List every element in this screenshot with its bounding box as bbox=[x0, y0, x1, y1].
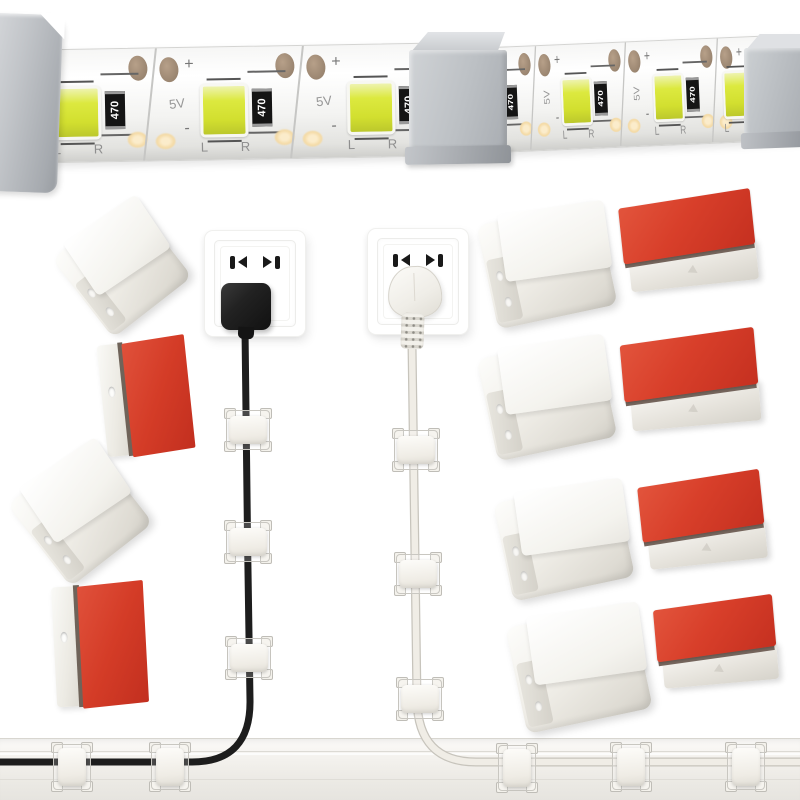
led-glow bbox=[156, 133, 176, 149]
cable-clip-on-wire bbox=[611, 743, 651, 791]
adhesive-cable-clip-red-pad-side bbox=[96, 336, 195, 459]
segment-separator bbox=[530, 44, 536, 150]
led-glow bbox=[537, 122, 550, 137]
resistor-label: 470 bbox=[686, 77, 700, 112]
mounting-hole bbox=[158, 56, 179, 83]
adhesive-cable-clip-red-pad-up bbox=[637, 472, 772, 573]
mounting-hole bbox=[127, 55, 148, 82]
adhesive-cable-clip-red-pad-up bbox=[618, 191, 763, 295]
led-chip bbox=[347, 80, 396, 135]
aluminum-end-cap-right bbox=[744, 34, 800, 150]
wall-outlet-right bbox=[368, 229, 468, 334]
socket-holes bbox=[205, 255, 305, 270]
clip-bridge bbox=[397, 436, 435, 464]
led-chip bbox=[200, 83, 249, 138]
adhesive-cable-clip-red-pad-side bbox=[51, 582, 149, 709]
clip-bridge bbox=[401, 685, 439, 713]
bracket-top-face bbox=[411, 32, 505, 52]
socket-hole-left bbox=[230, 255, 247, 270]
cable-clip-on-wire bbox=[497, 744, 537, 792]
mounting-hole bbox=[305, 54, 326, 81]
voltage-label: 5V bbox=[168, 95, 186, 112]
voltage-label: 5V bbox=[631, 86, 641, 101]
cable-clip-on-wire bbox=[397, 678, 443, 720]
adhesive-cable-clip-white bbox=[52, 198, 192, 338]
clip-bridge bbox=[399, 560, 437, 588]
socket-slot-icon bbox=[263, 256, 272, 268]
socket-slot-icon bbox=[238, 256, 247, 268]
clip-bridge bbox=[156, 748, 184, 786]
channel-label-right: R bbox=[94, 141, 104, 156]
baseboard-molding-highlight bbox=[0, 753, 800, 755]
clip-bridge bbox=[617, 748, 645, 786]
resistor-label: 470 bbox=[252, 88, 273, 126]
adhesive-cable-clip-white bbox=[7, 441, 153, 587]
bracket-bottom-lip bbox=[741, 131, 800, 149]
clip-bridge bbox=[503, 749, 531, 787]
channel-label-left: L bbox=[654, 124, 659, 138]
channel-label-left: L bbox=[201, 140, 208, 155]
led-unit: 4705V+-LR bbox=[554, 41, 652, 146]
resistor-text: 470 bbox=[256, 98, 268, 117]
bracket-bottom-lip bbox=[405, 145, 511, 165]
socket-slot-icon bbox=[393, 254, 398, 267]
channel-label-right: R bbox=[588, 127, 595, 141]
led-unit: 4705V+-LR bbox=[191, 45, 340, 160]
socket-hole-right bbox=[263, 255, 280, 270]
aluminum-connector-bracket bbox=[405, 32, 511, 166]
adhesive-cable-clip-red-pad-up bbox=[619, 330, 764, 434]
channel-label-left: L bbox=[348, 137, 355, 152]
clip-bridge bbox=[230, 644, 268, 672]
polarity-minus-label: - bbox=[331, 117, 337, 135]
adhesive-cable-clip-red-pad-up bbox=[653, 597, 782, 691]
product-photo-scene: 4705V+-LR4705V+-LR4705V+-LR 4705V+-LR470… bbox=[0, 0, 800, 800]
baseboard bbox=[0, 738, 800, 800]
led-strip-banner: 4705V+-LR4705V+-LR4705V+-LR 4705V+-LR470… bbox=[0, 0, 800, 205]
cable-clip-on-wire bbox=[393, 429, 439, 471]
mounting-hole bbox=[274, 52, 295, 79]
clip-bridge bbox=[732, 748, 760, 786]
black-power-plug bbox=[221, 283, 271, 330]
socket-hole-right bbox=[426, 253, 443, 268]
socket-slot-icon bbox=[275, 256, 280, 269]
adhesive-cable-clip-white bbox=[493, 478, 635, 602]
clip-bridge bbox=[229, 528, 267, 556]
mounting-hole bbox=[607, 48, 621, 72]
red-adhesive-pad bbox=[77, 580, 149, 709]
led-chip bbox=[652, 72, 685, 122]
segment-separator bbox=[620, 40, 626, 146]
resistor-label: 470 bbox=[105, 91, 126, 129]
channel-label-right: R bbox=[680, 123, 687, 137]
cable-clip-on-wire bbox=[395, 553, 441, 595]
mounting-hole bbox=[537, 53, 551, 77]
cable-clip-on-wire bbox=[225, 409, 271, 451]
voltage-label: 5V bbox=[542, 90, 552, 105]
socket-slot-icon bbox=[230, 256, 235, 269]
cable-clip-on-wire bbox=[226, 637, 272, 679]
adhesive-cable-clip-white bbox=[505, 602, 653, 734]
baseboard-molding-line bbox=[0, 779, 800, 780]
cable-clip-on-wire bbox=[52, 743, 92, 791]
bracket-front-face bbox=[744, 48, 800, 134]
bracket-front-face bbox=[409, 50, 507, 150]
polarity-minus-label: - bbox=[184, 120, 190, 138]
cable-clip-on-wire bbox=[726, 743, 766, 791]
clip-bridge bbox=[58, 748, 86, 786]
voltage-label: 5V bbox=[315, 93, 333, 110]
clip-bridge bbox=[229, 416, 267, 444]
plug-strain-relief bbox=[400, 313, 424, 350]
resistor-label: 470 bbox=[594, 81, 608, 116]
aluminum-end-cap-left bbox=[0, 13, 63, 194]
mounting-hole bbox=[627, 49, 641, 73]
resistor-text: 470 bbox=[597, 90, 605, 107]
wall-outlet-left bbox=[205, 231, 305, 336]
baseboard-molding-line bbox=[0, 751, 800, 752]
resistor-text: 470 bbox=[689, 86, 697, 103]
led-chip bbox=[560, 76, 593, 126]
resistor-text: 470 bbox=[109, 101, 121, 120]
channel-label-left: L bbox=[724, 121, 729, 135]
channel-label-right: R bbox=[241, 139, 251, 154]
socket-slot-icon bbox=[401, 254, 410, 266]
mounting-hole bbox=[699, 45, 713, 69]
adhesive-cable-clip-white bbox=[477, 334, 618, 461]
led-unit: 4705V+-LR bbox=[44, 48, 193, 163]
adhesive-cable-clip-white bbox=[476, 200, 617, 329]
socket-slot-icon bbox=[426, 254, 435, 266]
cable-clip-on-wire bbox=[225, 521, 271, 563]
mounting-hole bbox=[517, 52, 531, 76]
led-glow bbox=[627, 118, 640, 133]
cable-clip-on-wire bbox=[150, 743, 190, 791]
channel-label-right: R bbox=[388, 136, 398, 151]
socket-slot-icon bbox=[438, 254, 443, 267]
red-adhesive-pad bbox=[121, 334, 196, 457]
channel-label-left: L bbox=[562, 128, 567, 142]
led-glow bbox=[302, 131, 322, 147]
